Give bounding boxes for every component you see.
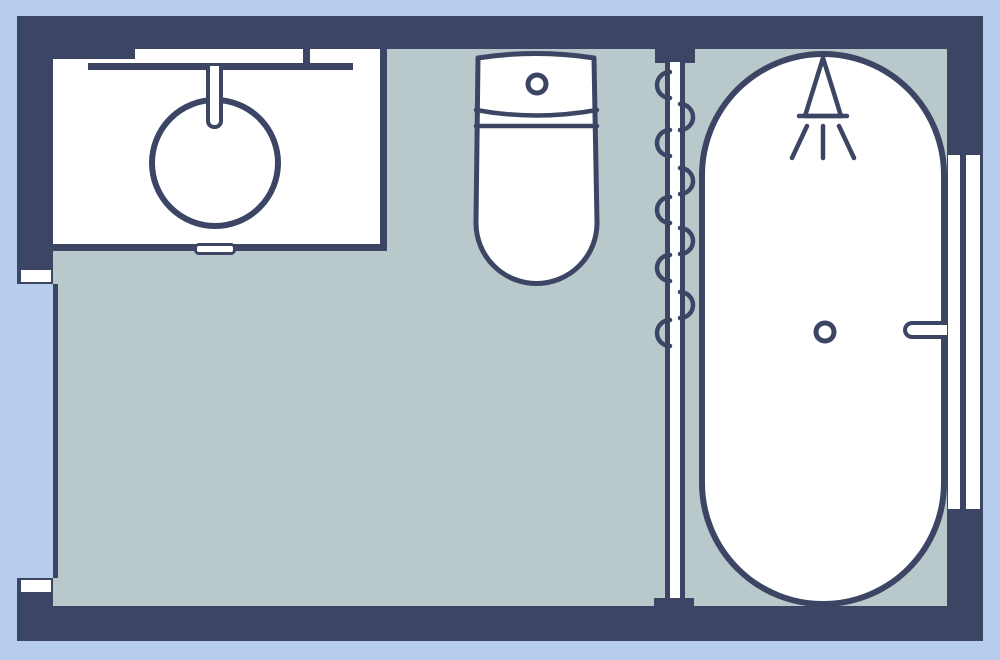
door-jamb-top: [19, 268, 53, 284]
door-jamb-bottom: [19, 578, 53, 594]
bathroom-floor-plan: [0, 0, 1000, 660]
shower-curtain-rail: [665, 62, 685, 602]
door-opening: [17, 284, 53, 578]
vanity-drawer-handle: [194, 243, 236, 255]
door-edge-line: [53, 284, 58, 578]
curtain-wall-stub-top: [655, 49, 695, 63]
curtain-wall-stub-bottom: [654, 598, 694, 612]
vanity-wall-ledge: [53, 49, 135, 59]
sink-faucet: [206, 66, 223, 129]
bathtub-handle: [903, 321, 947, 339]
window-divider: [960, 155, 966, 509]
